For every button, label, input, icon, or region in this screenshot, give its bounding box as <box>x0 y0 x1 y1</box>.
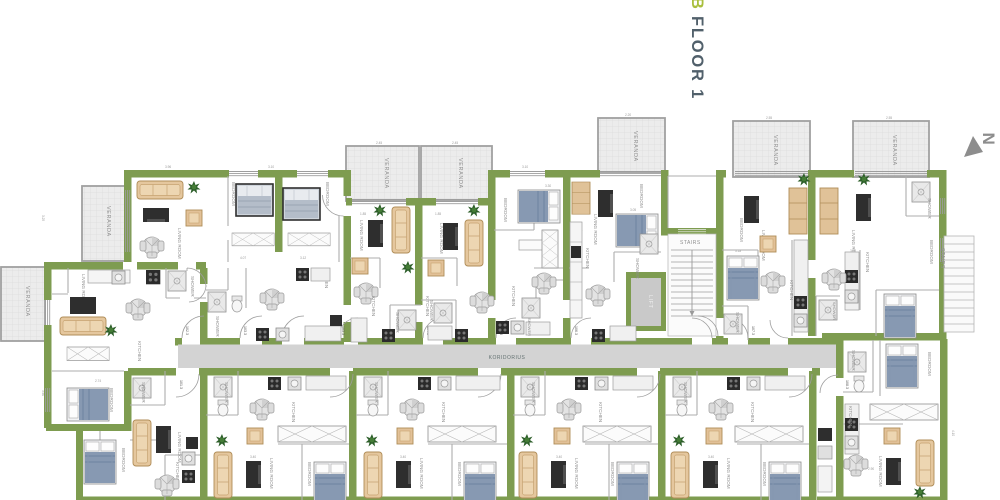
svg-text:KITCHEN: KITCHEN <box>750 402 755 422</box>
svg-text:LIVING ROOM: LIVING ROOM <box>269 458 274 489</box>
svg-text:3.30: 3.30 <box>545 184 551 188</box>
svg-text:SHOWER: SHOWER <box>832 302 837 320</box>
svg-text:SHOWER: SHOWER <box>635 258 640 279</box>
svg-text:3.40: 3.40 <box>556 455 562 459</box>
svg-text:LIVING ROOM: LIVING ROOM <box>359 220 364 251</box>
svg-text:KITCHEN: KITCHEN <box>291 402 296 422</box>
svg-text:BEDROOM: BEDROOM <box>325 182 330 206</box>
svg-text:BEDROOM: BEDROOM <box>503 198 508 222</box>
svg-text:1.85: 1.85 <box>360 212 366 216</box>
svg-text:SHOWER: SHOWER <box>683 382 688 403</box>
svg-text:LIVING ROOM: LIVING ROOM <box>419 458 424 489</box>
svg-text:LIVING ROOM: LIVING ROOM <box>593 214 598 245</box>
svg-text:BEDROOM: BEDROOM <box>121 448 126 472</box>
svg-text:3.10: 3.10 <box>268 165 274 169</box>
svg-text:4.07: 4.07 <box>240 256 246 260</box>
svg-text:VERANDA: VERANDA <box>891 135 897 166</box>
svg-text:KITCHEN: KITCHEN <box>789 280 794 300</box>
svg-text:N: N <box>979 133 998 145</box>
svg-text:SHOWER: SHOWER <box>395 312 400 333</box>
svg-text:STAIRS: STAIRS <box>680 240 701 246</box>
svg-text:3.96: 3.96 <box>165 165 171 169</box>
svg-text:106.3: 106.3 <box>574 326 578 335</box>
svg-text:SHOWER: SHOWER <box>531 382 536 403</box>
svg-text:BEDROOM: BEDROOM <box>929 240 934 264</box>
svg-text:KITCHEN: KITCHEN <box>598 402 603 422</box>
svg-text:KITCHEN: KITCHEN <box>585 248 590 268</box>
svg-text:BEDROOM: BEDROOM <box>307 462 312 486</box>
svg-text:VERANDA: VERANDA <box>24 286 30 317</box>
svg-text:VERANDA: VERANDA <box>457 158 463 189</box>
svg-text:SHOWER: SHOWER <box>851 350 856 371</box>
svg-text:VERANDA: VERANDA <box>105 206 111 237</box>
svg-text:SHOWER: SHOWER <box>927 198 932 219</box>
svg-text:2.74: 2.74 <box>95 379 101 383</box>
svg-text:2.55: 2.55 <box>886 116 892 120</box>
svg-text:3.10: 3.10 <box>522 165 528 169</box>
svg-text:SHOWER: SHOWER <box>190 276 195 297</box>
svg-text:BEDROOM: BEDROOM <box>231 182 236 206</box>
svg-text:103.3: 103.3 <box>341 326 345 335</box>
svg-text:BEDROOM: BEDROOM <box>639 184 644 208</box>
svg-text:BEDROOM: BEDROOM <box>927 352 932 376</box>
svg-text:BEDROOM: BEDROOM <box>610 462 615 486</box>
svg-text:SHOWER: SHOWER <box>374 382 379 403</box>
svg-text:107.3: 107.3 <box>751 326 755 335</box>
svg-text:2.20: 2.20 <box>625 113 631 117</box>
svg-text:KORIDORIUS: KORIDORIUS <box>489 355 526 361</box>
svg-text:BEDROOM: BEDROOM <box>457 462 462 486</box>
svg-text:SHOWER: SHOWER <box>141 382 146 403</box>
svg-text:103.3: 103.3 <box>243 326 247 335</box>
svg-text:LIVING ROOM: LIVING ROOM <box>177 228 182 259</box>
svg-text:VERANDA: VERANDA <box>383 158 389 189</box>
svg-text:3.40: 3.40 <box>708 455 714 459</box>
svg-text:KITCHEN: KITCHEN <box>511 286 516 306</box>
svg-text:SHOWER: SHOWER <box>224 382 229 403</box>
svg-text:2.90: 2.90 <box>868 467 874 471</box>
svg-text:BEDROOM: BEDROOM <box>762 462 767 486</box>
svg-text:SHOWER: SHOWER <box>527 318 532 336</box>
svg-text:SHOWER: SHOWER <box>735 312 740 333</box>
svg-text:KITCHEN: KITCHEN <box>137 341 142 361</box>
svg-text:3.25: 3.25 <box>41 215 45 221</box>
svg-text:KITCHEN: KITCHEN <box>441 402 446 422</box>
svg-text:STAIRS: STAIRS <box>939 248 945 269</box>
svg-text:3.12: 3.12 <box>300 256 306 260</box>
svg-text:KITCHEN: KITCHEN <box>371 296 376 316</box>
svg-text:1.85: 1.85 <box>435 212 441 216</box>
svg-text:SHOWER: SHOWER <box>429 300 434 321</box>
svg-text:LIVING ROOM: LIVING ROOM <box>439 223 444 254</box>
svg-text:FLOOR 1: FLOOR 1 <box>688 16 706 100</box>
svg-text:2.55: 2.55 <box>766 116 772 120</box>
svg-text:4.10: 4.10 <box>951 430 955 436</box>
svg-text:2.45: 2.45 <box>452 141 458 145</box>
svg-text:LIVING ROOM: LIVING ROOM <box>177 432 182 463</box>
svg-text:SHOWER: SHOWER <box>215 316 220 337</box>
svg-text:BEDROOM: BEDROOM <box>109 388 114 412</box>
svg-text:KITCHEN: KITCHEN <box>848 406 853 426</box>
svg-text:108.3: 108.3 <box>845 380 849 389</box>
svg-text:2.45: 2.45 <box>376 141 382 145</box>
svg-text:3.05: 3.05 <box>630 208 636 212</box>
svg-text:3.40: 3.40 <box>400 455 406 459</box>
svg-text:LIVING ROOM: LIVING ROOM <box>574 458 579 489</box>
svg-text:101.3: 101.3 <box>179 380 183 389</box>
svg-text:LIVING ROOM: LIVING ROOM <box>726 458 731 489</box>
svg-text:KITCHEN: KITCHEN <box>865 252 870 272</box>
svg-text:VERANDA: VERANDA <box>772 135 778 166</box>
svg-text:LIVING ROOM: LIVING ROOM <box>878 456 883 487</box>
svg-text:VERANDA: VERANDA <box>632 131 638 162</box>
svg-text:102.3: 102.3 <box>185 326 189 335</box>
svg-text:LIFT: LIFT <box>647 295 653 308</box>
svg-text:3.40: 3.40 <box>250 455 256 459</box>
svg-text:BEDROOM: BEDROOM <box>739 218 744 242</box>
svg-text:B: B <box>688 0 706 10</box>
